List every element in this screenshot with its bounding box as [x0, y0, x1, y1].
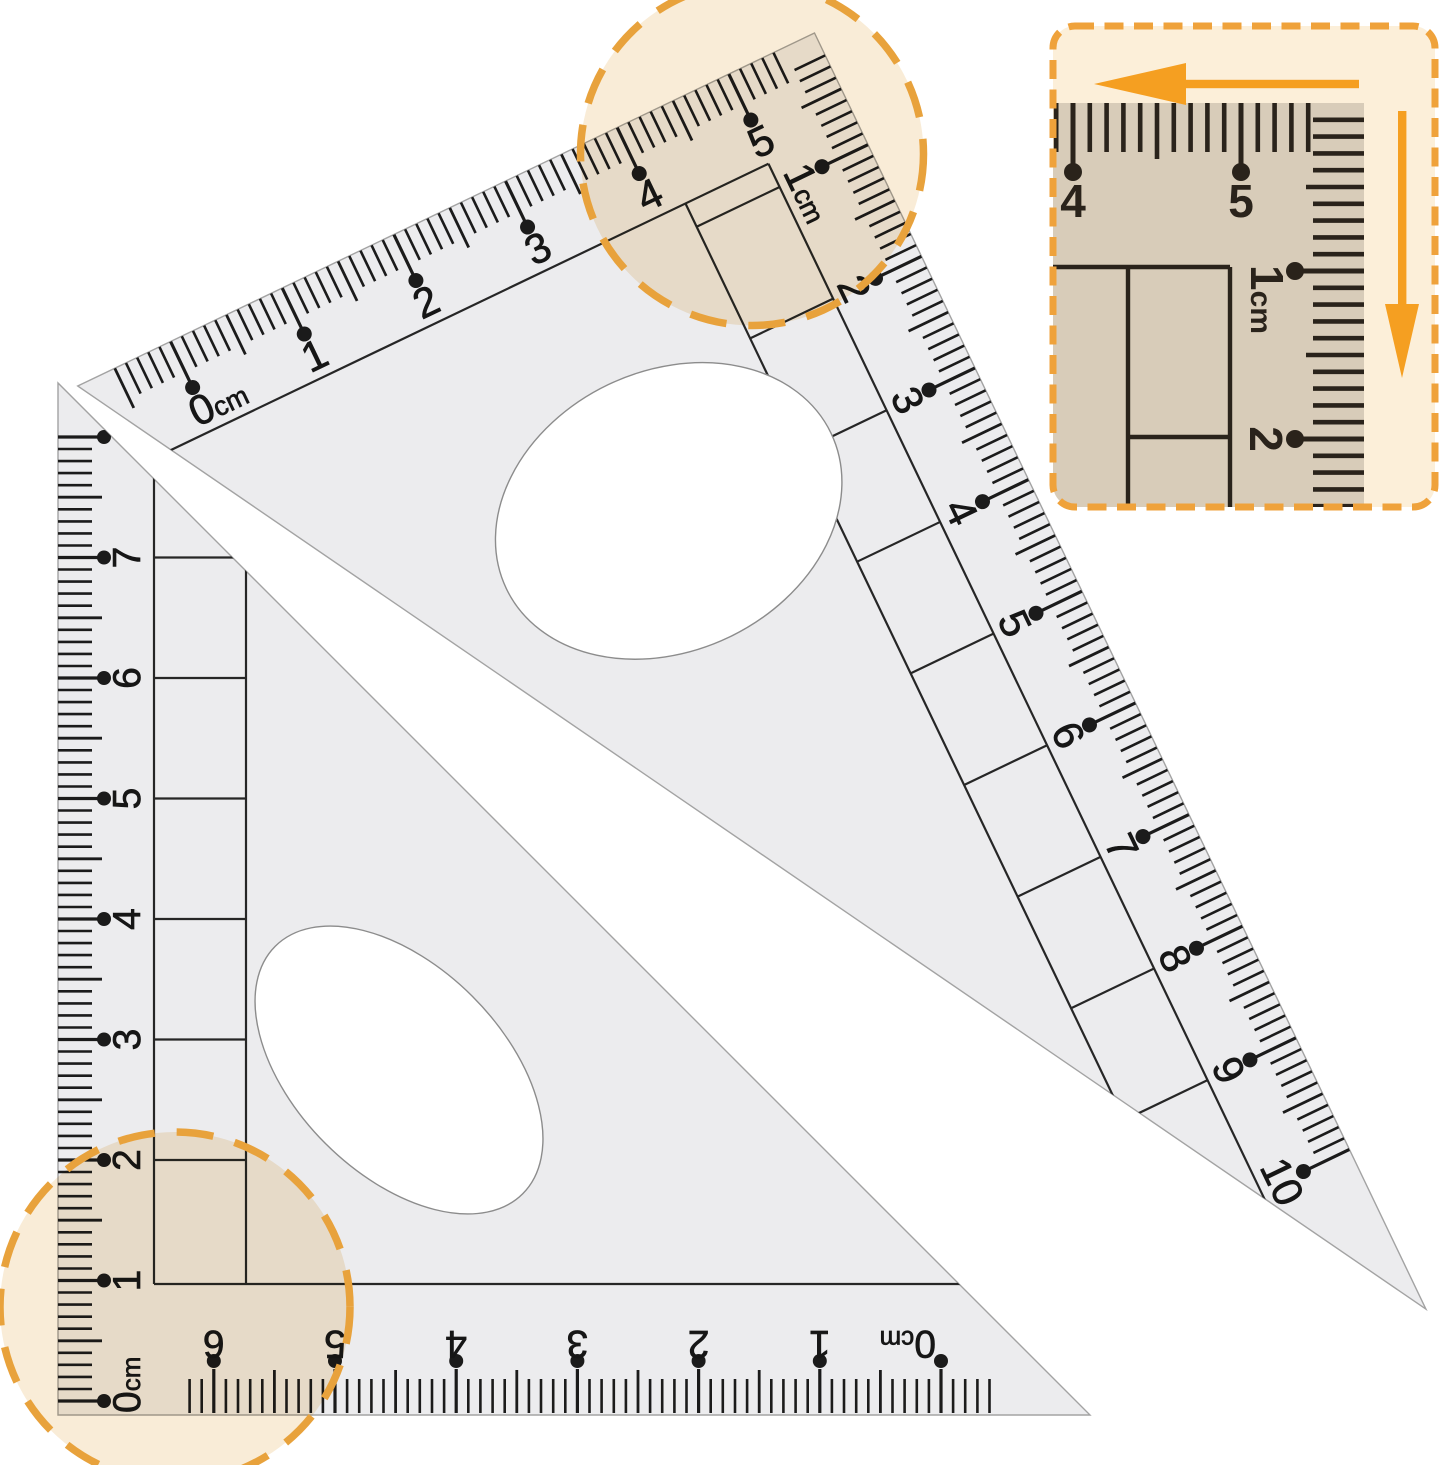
- svg-text:5: 5: [106, 788, 149, 810]
- svg-text:7: 7: [106, 547, 149, 569]
- svg-text:1: 1: [809, 1322, 831, 1365]
- svg-text:5: 5: [1228, 175, 1254, 227]
- svg-text:2: 2: [1240, 426, 1292, 452]
- svg-text:4: 4: [106, 908, 149, 930]
- svg-text:4: 4: [445, 1322, 467, 1365]
- svg-text:3: 3: [106, 1029, 149, 1051]
- svg-text:4: 4: [1060, 175, 1086, 227]
- svg-text:6: 6: [106, 667, 149, 689]
- svg-text:2: 2: [688, 1322, 710, 1365]
- svg-text:3: 3: [567, 1322, 589, 1365]
